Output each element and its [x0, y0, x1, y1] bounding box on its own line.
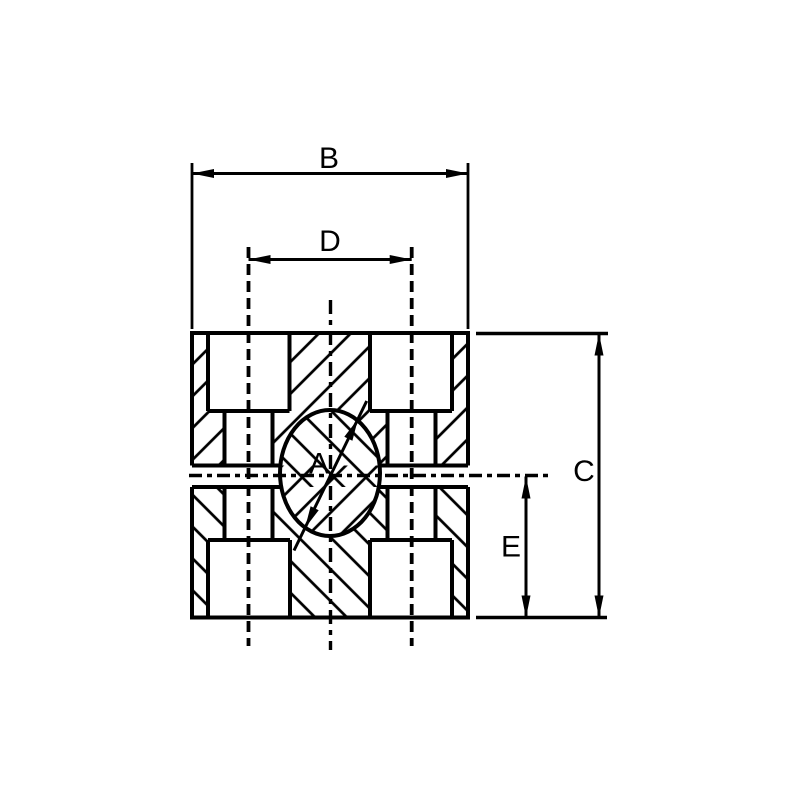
arrowhead-left [249, 255, 271, 264]
dimension-center-to-bottom: E [501, 477, 531, 618]
clamp-section-drawing: B D C E A [0, 0, 800, 800]
arrowhead-left [192, 169, 214, 178]
arrowhead-right [390, 255, 412, 264]
arrowhead-top [595, 334, 604, 356]
dimension-label-b: B [319, 142, 339, 175]
arrowhead-bottom [522, 596, 531, 618]
arrowhead-bottom [595, 596, 604, 618]
arrowhead-right [446, 169, 468, 178]
dimension-bolt-spacing: D [249, 225, 412, 264]
dimension-label-d: D [319, 225, 341, 258]
drawing-canvas: B D C E A [0, 0, 800, 800]
dimension-label-a: A [309, 448, 329, 481]
dimension-label-c: C [573, 455, 595, 488]
arrowhead-top [522, 477, 531, 499]
dimension-label-e: E [501, 531, 521, 564]
dimension-overall-height: C [476, 334, 608, 618]
